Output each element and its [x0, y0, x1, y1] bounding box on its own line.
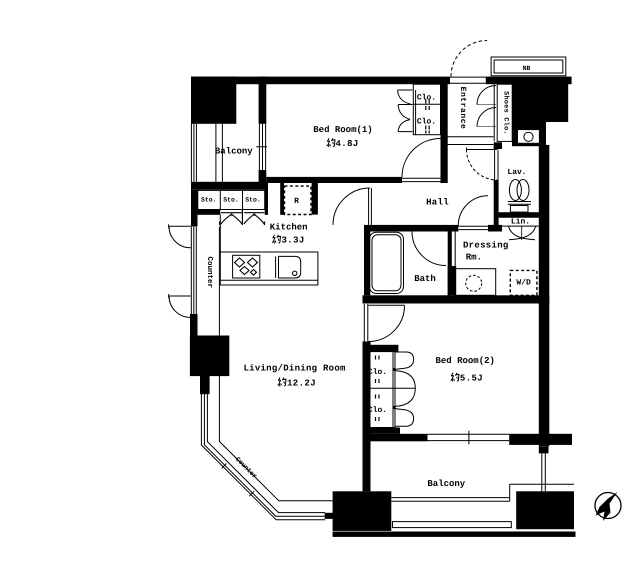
svg-text:W/D: W/D	[516, 278, 531, 287]
svg-text:Rm.: Rm.	[466, 252, 482, 262]
svg-text:Clo.: Clo.	[417, 117, 436, 126]
svg-text:Shoes Clo.: Shoes Clo.	[502, 91, 510, 135]
svg-text:Bed Room(2): Bed Room(2)	[435, 356, 494, 366]
svg-text:R: R	[294, 197, 299, 206]
svg-text:Clo.: Clo.	[417, 93, 436, 102]
svg-text:Balcony: Balcony	[215, 146, 253, 156]
svg-text:Counter: Counter	[205, 257, 214, 289]
svg-text:Sto.: Sto.	[245, 197, 261, 204]
svg-text:12.2J: 12.2J	[287, 379, 316, 389]
svg-text:4.8J: 4.8J	[336, 139, 359, 149]
svg-text:3.3J: 3.3J	[282, 236, 305, 246]
svg-text:Sto.: Sto.	[201, 197, 217, 204]
svg-text:Living/Dining Room: Living/Dining Room	[243, 363, 346, 373]
svg-text:Clo.: Clo.	[368, 406, 387, 415]
svg-text:5.5J: 5.5J	[460, 374, 483, 384]
svg-text:Entrance: Entrance	[458, 87, 467, 130]
svg-text:Lav.: Lav.	[507, 168, 526, 177]
svg-text:Sto.: Sto.	[223, 197, 239, 204]
svg-text:NB: NB	[523, 65, 531, 72]
svg-text:Balcony: Balcony	[427, 479, 465, 489]
svg-text:Bed Room(1): Bed Room(1)	[313, 125, 372, 135]
svg-text:Bath: Bath	[414, 274, 436, 284]
svg-text:Hall: Hall	[426, 198, 449, 208]
svg-text:Lin.: Lin.	[511, 218, 530, 227]
svg-text:Clo.: Clo.	[368, 368, 387, 377]
svg-text:Dressing: Dressing	[463, 240, 509, 250]
svg-text:Kitchen: Kitchen	[270, 223, 308, 233]
